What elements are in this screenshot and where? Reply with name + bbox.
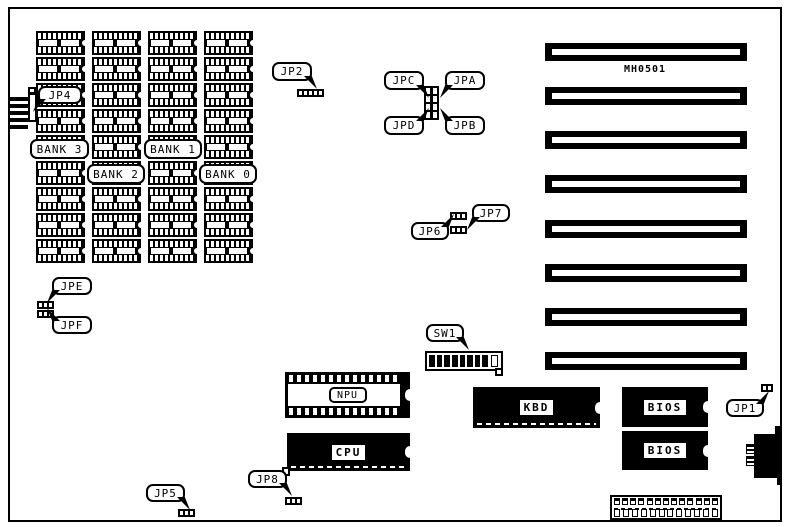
npu-text: NPU	[337, 390, 358, 401]
jp4-text: JP4	[49, 89, 72, 102]
jumper-pin	[297, 499, 300, 503]
connector-cell	[650, 509, 656, 517]
memory-chip	[204, 187, 253, 211]
socket-pins-bottom	[289, 408, 401, 415]
expansion-slot	[545, 131, 747, 149]
memory-chip	[92, 239, 141, 263]
connector-cell	[623, 509, 629, 517]
jpd-text: JPD	[393, 119, 416, 132]
jumper-pin	[452, 228, 455, 232]
jumper-pin	[287, 499, 290, 503]
jumper-pin	[309, 91, 312, 95]
jumper-pin	[49, 303, 52, 307]
jp2-jumper	[297, 89, 324, 97]
jumper-pin	[292, 499, 295, 503]
switch-position-closed	[444, 355, 450, 367]
switch-position-closed	[482, 355, 488, 367]
jumper-pin	[763, 386, 766, 390]
left-connector-step	[28, 87, 36, 94]
connector-cell	[703, 509, 709, 517]
label-bank1: BANK 1	[144, 139, 202, 159]
connector-pin	[704, 498, 710, 505]
power-connector	[610, 495, 722, 520]
jumper-pin	[462, 228, 465, 232]
socket-pins-top	[289, 375, 401, 382]
jumper-pin	[39, 312, 42, 316]
callout-jpa: JPA	[445, 71, 485, 90]
memory-chip	[204, 239, 253, 263]
keyboard-connector-pin	[746, 456, 755, 466]
center-jumper-block	[424, 86, 439, 120]
memory-chip	[204, 213, 253, 237]
callout-sw1: SW1	[426, 324, 464, 342]
power-connector-cells	[614, 509, 718, 517]
jpa-text: JPA	[454, 74, 477, 87]
connector-cell	[712, 509, 718, 517]
label-bank3: BANK 3	[30, 139, 89, 159]
jpb-text: JPB	[454, 119, 477, 132]
jumper-pin	[299, 91, 302, 95]
dip-switch-row	[429, 355, 488, 367]
jumper-pin	[185, 511, 188, 515]
cpu-notch	[405, 446, 410, 458]
jumper-pin	[768, 386, 771, 390]
memory-chip	[204, 109, 253, 133]
jp6-text: JP6	[419, 225, 442, 238]
connector-pin	[655, 498, 661, 505]
memory-chip	[148, 57, 197, 81]
jp8-text: JP8	[256, 473, 279, 486]
connector-pin	[663, 498, 669, 505]
memory-chip	[92, 187, 141, 211]
memory-chip	[204, 135, 253, 159]
switch-position-closed	[467, 355, 473, 367]
label-bank2: BANK 2	[87, 164, 145, 184]
keyboard-connector-step-top	[775, 426, 782, 434]
expansion-slot	[545, 220, 747, 238]
memory-chip	[36, 57, 85, 81]
jp2-text: JP2	[281, 65, 304, 78]
memory-chip	[92, 135, 141, 159]
memory-chip	[36, 213, 85, 237]
jumper-pin	[319, 91, 322, 95]
connector-finger	[10, 104, 28, 108]
jp5-text: JP5	[154, 487, 177, 500]
connector-cell	[667, 509, 673, 517]
jumper-pin	[433, 104, 437, 110]
connector-cell	[632, 509, 638, 517]
switch-position-closed	[452, 355, 458, 367]
jumper-pin	[433, 96, 437, 102]
memory-chip	[148, 239, 197, 263]
connector-pin	[671, 498, 677, 505]
bios-chip-top: BIOS	[622, 387, 708, 427]
jp7-jumper	[450, 226, 467, 234]
keyboard-connector-step-bottom	[777, 478, 782, 485]
memory-chip	[204, 31, 253, 55]
memory-chip	[36, 187, 85, 211]
bios-top-notch	[703, 401, 708, 413]
memory-chip	[92, 213, 141, 237]
jp7-text: JP7	[480, 207, 503, 220]
expansion-slot	[545, 308, 747, 326]
cpu-chip: CPU	[287, 433, 410, 471]
memory-chip	[148, 31, 197, 55]
jpf-text: JPF	[61, 319, 84, 332]
jumper-pin	[190, 511, 193, 515]
callout-jp4: JP4	[38, 86, 82, 104]
switch-corner-tab	[495, 368, 503, 376]
expansion-slot	[545, 352, 747, 370]
power-connector-pins	[614, 498, 718, 506]
jpe-text: JPE	[61, 280, 84, 293]
bios-top-label: BIOS	[644, 400, 687, 415]
callout-jp7: JP7	[472, 204, 510, 222]
cpu-socket-dashes	[291, 466, 406, 468]
expansion-slot	[545, 264, 747, 282]
jumper-pin	[314, 91, 317, 95]
jp5-jumper	[178, 509, 195, 517]
memory-chip	[36, 31, 85, 55]
jp1-jumper	[761, 384, 773, 392]
memory-chip	[204, 57, 253, 81]
connector-cell	[659, 509, 665, 517]
connector-cell	[614, 509, 620, 517]
jumper-pin	[457, 228, 460, 232]
bios-chip-bottom: BIOS	[622, 431, 708, 470]
callout-jp5: JP5	[146, 484, 185, 502]
switch-position-closed	[475, 355, 481, 367]
jumper-pin	[44, 303, 47, 307]
model-number: MH0501	[598, 64, 692, 75]
connector-pin	[687, 498, 693, 505]
connector-cell	[641, 509, 647, 517]
callout-jp2: JP2	[272, 62, 312, 81]
memory-chip	[148, 161, 197, 185]
connector-pin	[638, 498, 644, 505]
connector-finger	[10, 118, 28, 122]
sw1-text: SW1	[434, 327, 457, 340]
connector-pin	[679, 498, 685, 505]
callout-jpd: JPD	[384, 116, 424, 135]
jumper-pin	[44, 312, 47, 316]
memory-chip	[204, 83, 253, 107]
connector-pin	[696, 498, 702, 505]
memory-chip	[148, 187, 197, 211]
switch-position-open	[491, 355, 498, 367]
memory-chip	[36, 109, 85, 133]
memory-chip	[148, 83, 197, 107]
dip-switch-sw1	[425, 351, 503, 371]
callout-jp8: JP8	[248, 470, 287, 488]
bank3-text: BANK 3	[37, 143, 83, 156]
callout-jp6: JP6	[411, 222, 449, 240]
kbd-notch	[595, 402, 600, 414]
jumper-pin	[433, 88, 437, 94]
memory-chip	[36, 239, 85, 263]
bios-bottom-label: BIOS	[644, 443, 687, 458]
memory-chip	[92, 109, 141, 133]
left-edge-connector	[10, 97, 28, 129]
jumper-pin	[39, 303, 42, 307]
npu-label: NPU	[329, 387, 367, 403]
connector-finger	[10, 111, 28, 115]
expansion-slot	[545, 87, 747, 105]
memory-chip	[92, 83, 141, 107]
connector-finger	[10, 125, 28, 129]
connector-cell	[676, 509, 682, 517]
npu-socket: NPU	[285, 372, 410, 418]
cpu-label: CPU	[332, 445, 366, 460]
expansion-slot	[545, 43, 747, 61]
expansion-slot-column	[545, 43, 747, 370]
socket-notch	[405, 389, 410, 401]
memory-chip	[148, 109, 197, 133]
callout-jpe: JPE	[52, 277, 92, 295]
switch-position-closed	[437, 355, 443, 367]
jumper-pin	[462, 214, 465, 218]
keyboard-connector-pin	[746, 444, 755, 454]
label-bank0: BANK 0	[199, 164, 257, 184]
jp8-jumper	[285, 497, 302, 505]
connector-pin	[614, 498, 620, 505]
connector-pin	[647, 498, 653, 505]
memory-chip	[92, 57, 141, 81]
memory-chip	[148, 213, 197, 237]
kbd-label: KBD	[520, 400, 554, 415]
jp1-text: JP1	[734, 402, 757, 415]
jpc-text: JPC	[393, 74, 416, 87]
bank1-text: BANK 1	[150, 143, 196, 156]
memory-chip	[92, 31, 141, 55]
jpe-jumper	[37, 301, 54, 309]
kbd-chip: KBD	[473, 387, 600, 428]
bios-bottom-notch	[703, 445, 708, 457]
connector-finger	[10, 97, 28, 101]
kbd-socket-dashes	[477, 423, 596, 425]
connector-pin	[630, 498, 636, 505]
callout-jp1: JP1	[726, 399, 764, 417]
expansion-slot	[545, 175, 747, 193]
callout-jpb: JPB	[445, 116, 485, 135]
connector-pin	[712, 498, 718, 505]
jumper-pin	[433, 112, 437, 118]
motherboard-diagram: BANK 3 BANK 1 BANK 2 BANK 0 JP4 JP2 JPC …	[0, 0, 791, 527]
connector-pin	[622, 498, 628, 505]
jumper-pin	[304, 91, 307, 95]
keyboard-connector-body	[754, 434, 782, 478]
switch-position-closed	[460, 355, 466, 367]
switch-position-closed	[429, 355, 435, 367]
memory-chip	[36, 161, 85, 185]
bank2-text: BANK 2	[93, 168, 139, 181]
callout-jpc: JPC	[384, 71, 424, 90]
jumper-pin	[457, 214, 460, 218]
connector-cell	[685, 509, 691, 517]
callout-jpf: JPF	[52, 316, 92, 334]
jumper-pin	[180, 511, 183, 515]
bank0-text: BANK 0	[205, 168, 251, 181]
connector-cell	[694, 509, 700, 517]
